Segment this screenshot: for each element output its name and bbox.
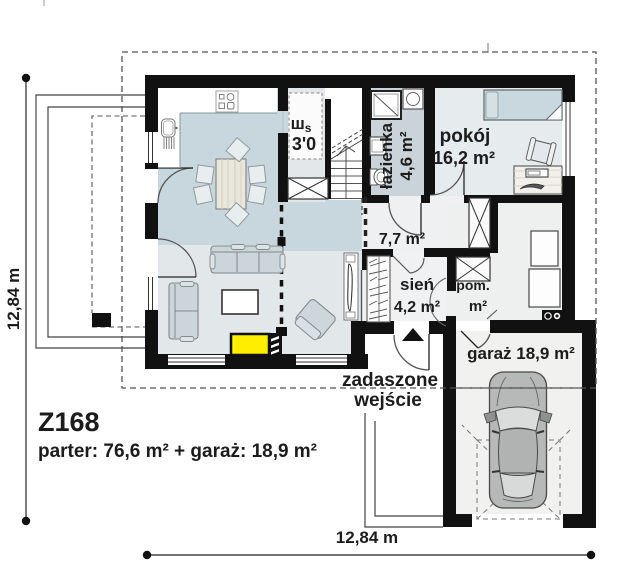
svg-text:3'0: 3'0 bbox=[292, 134, 316, 154]
svg-text:Z168: Z168 bbox=[38, 407, 100, 437]
svg-text:pom.: pom. bbox=[456, 277, 489, 293]
svg-text:7,7 m²: 7,7 m² bbox=[379, 231, 425, 248]
svg-text:12,84 m: 12,84 m bbox=[336, 528, 398, 547]
svg-text:4,6 m²: 4,6 m² bbox=[397, 131, 416, 180]
svg-text:4,2 m²: 4,2 m² bbox=[394, 299, 440, 316]
svg-text:parter: 76,6 m² + garaż: 18,9: parter: 76,6 m² + garaż: 18,9 m² bbox=[38, 441, 317, 462]
svg-text:16,2 m²: 16,2 m² bbox=[433, 148, 495, 168]
svg-text:wejście: wejście bbox=[353, 390, 422, 411]
svg-text:zadaszone: zadaszone bbox=[342, 370, 438, 391]
svg-text:12,84 m: 12,84 m bbox=[4, 268, 23, 330]
svg-text:m²: m² bbox=[469, 298, 487, 315]
svg-text:pokój: pokój bbox=[440, 126, 491, 147]
svg-text:łazienka: łazienka bbox=[377, 122, 396, 189]
svg-text:garaż 18,9 m²: garaż 18,9 m² bbox=[467, 344, 575, 363]
svg-text:sień: sień bbox=[400, 275, 434, 294]
